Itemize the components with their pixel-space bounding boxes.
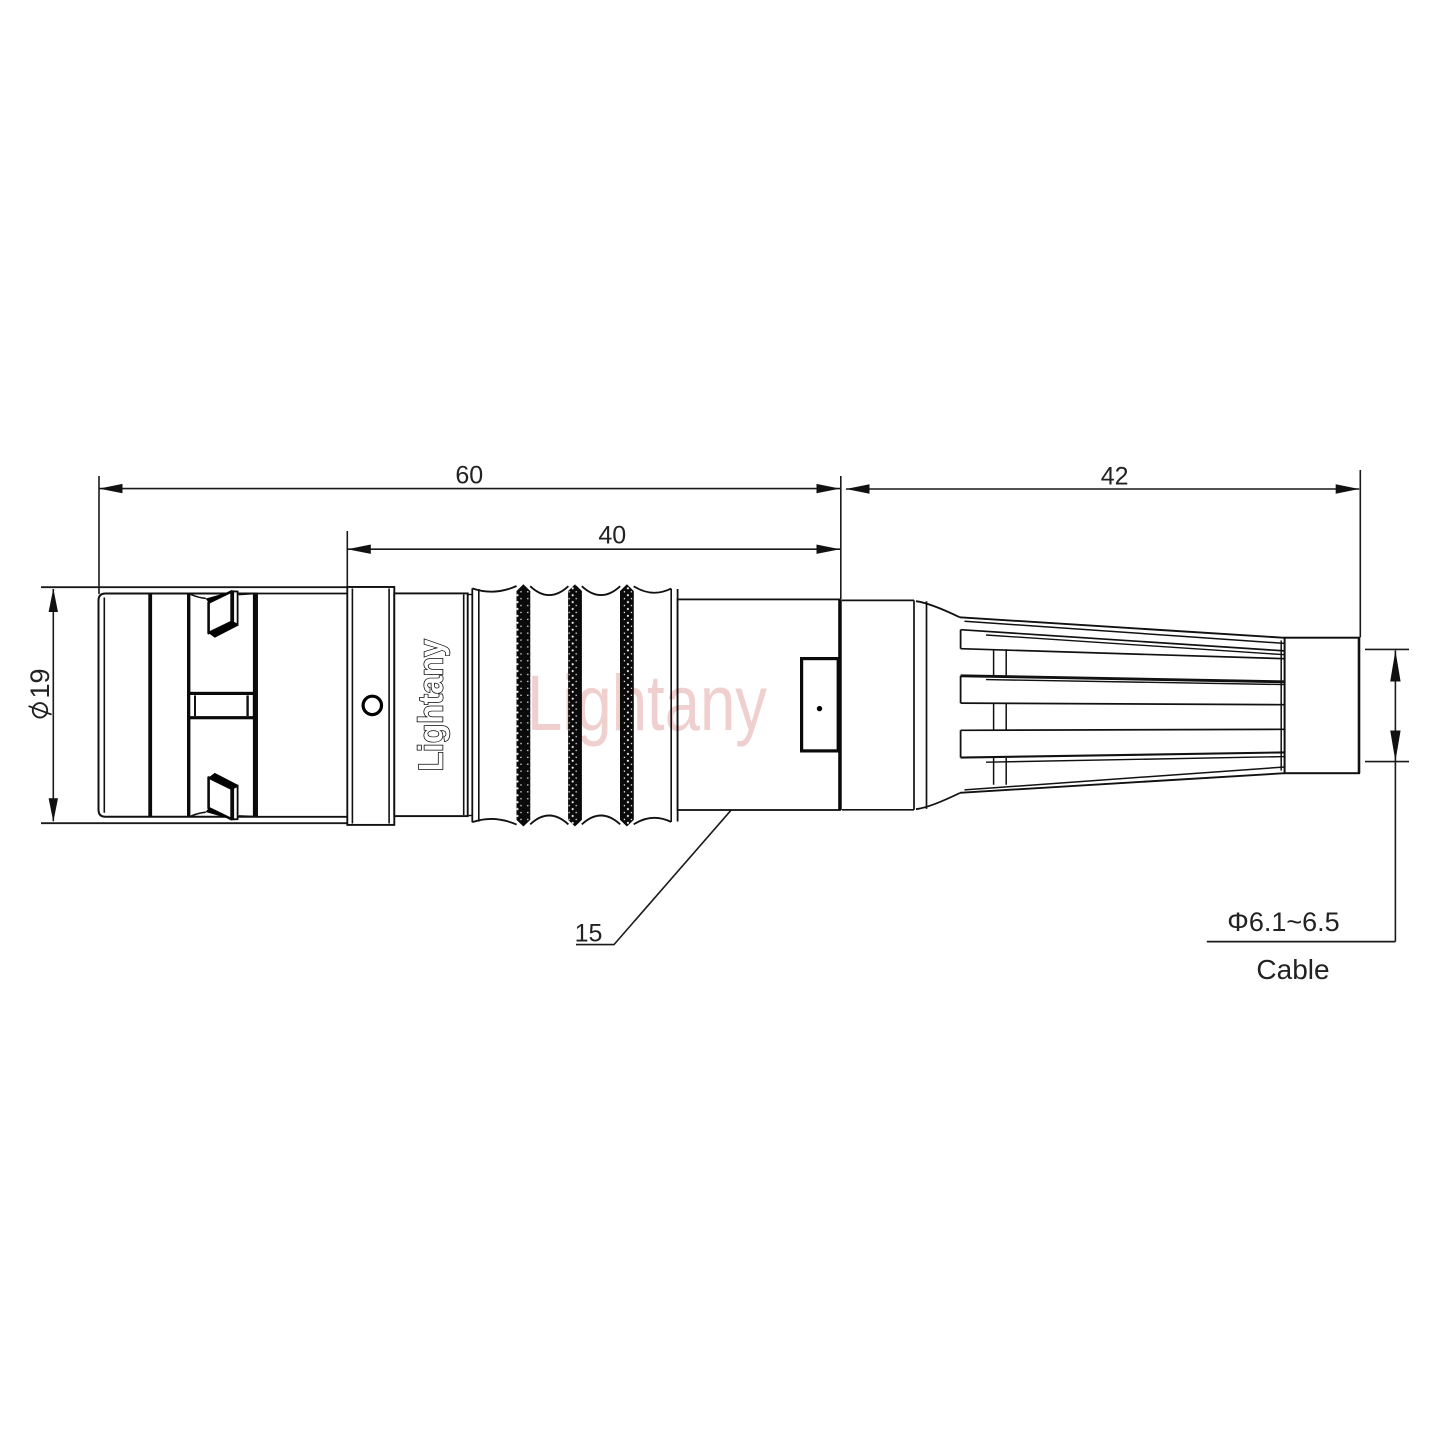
svg-text:Lightany: Lightany [527, 658, 767, 747]
svg-text:Φ6.1~6.5: Φ6.1~6.5 [1227, 907, 1339, 937]
svg-text:Cable: Cable [1256, 954, 1329, 985]
svg-text:15: 15 [575, 920, 603, 948]
svg-text:42: 42 [1101, 462, 1129, 490]
svg-text:Lightany: Lightany [413, 639, 451, 771]
svg-text:40: 40 [598, 522, 626, 550]
svg-text:60: 60 [455, 462, 483, 490]
svg-text:19: 19 [25, 668, 55, 698]
